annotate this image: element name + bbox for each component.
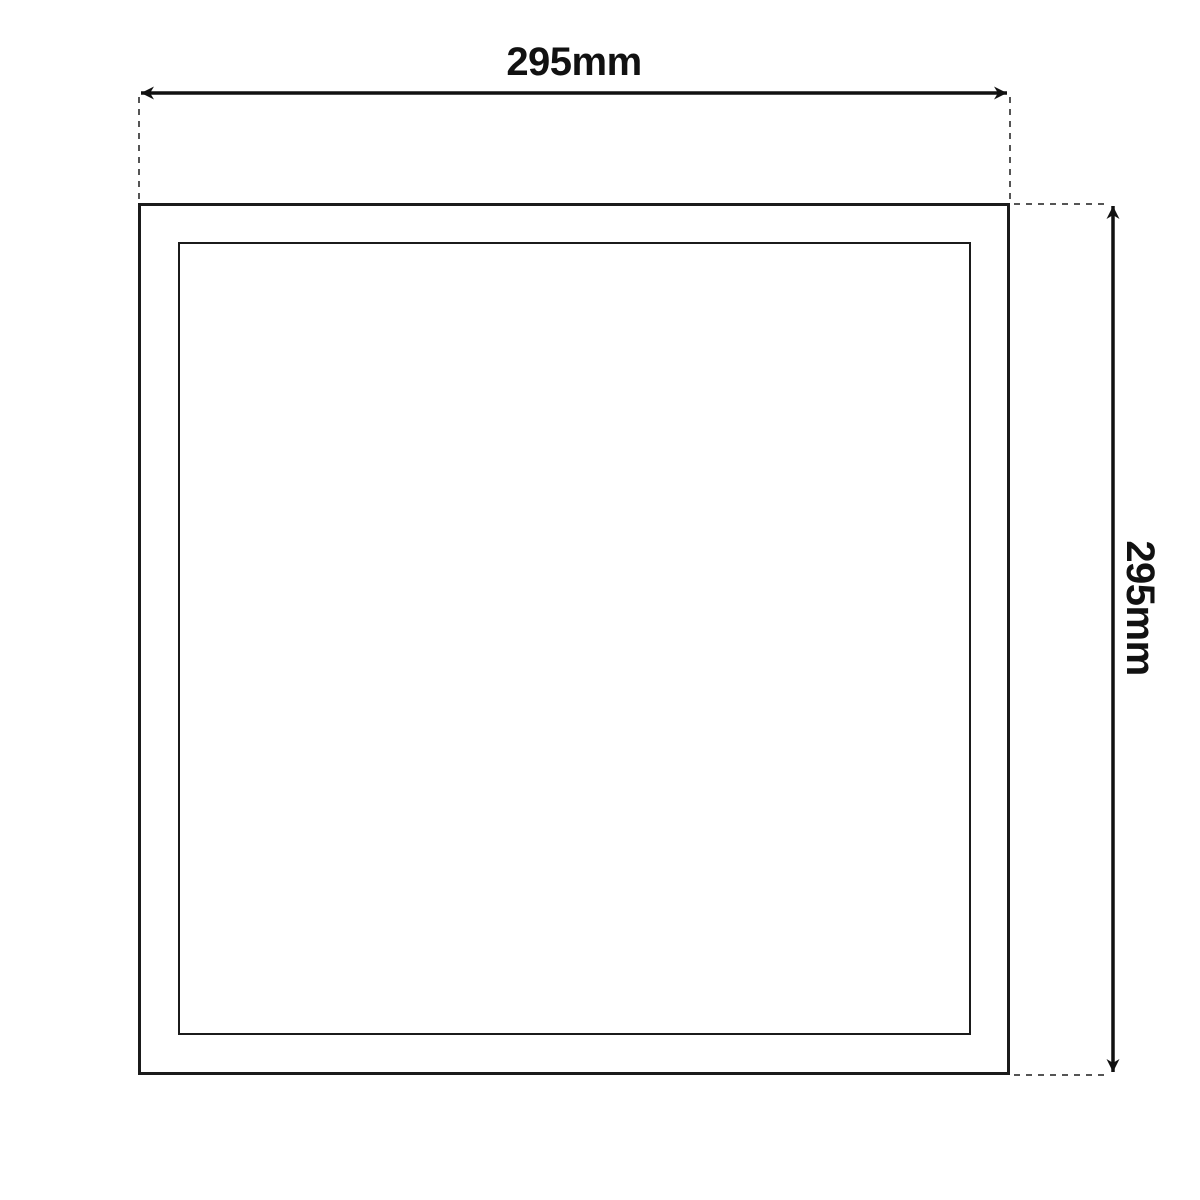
height-dimension-label: 295mm [1120,508,1160,708]
width-dimension-label: 295mm [174,42,974,82]
panel-inner-frame [178,242,971,1035]
dimension-diagram: 295mm 295mm [0,0,1200,1200]
